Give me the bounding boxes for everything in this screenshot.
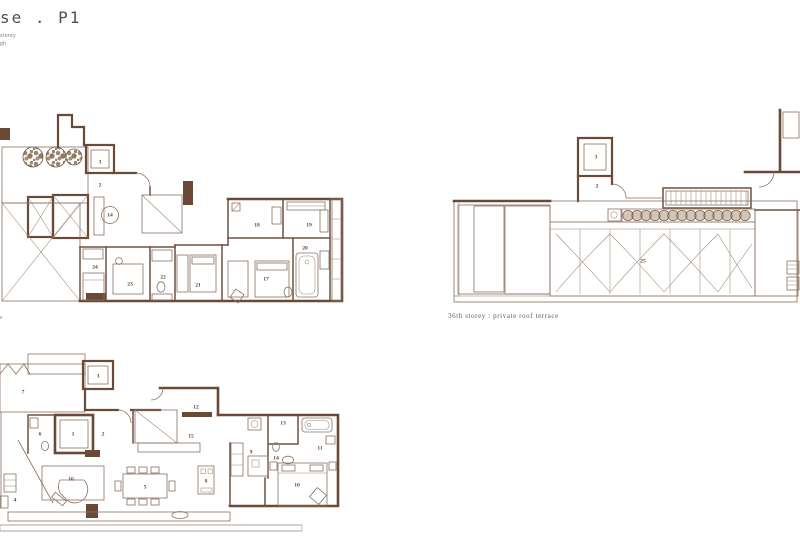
room-label-20: 20 <box>302 245 308 251</box>
room-label-17: 17 <box>263 276 269 282</box>
roof-terrace-plan: 3225 <box>450 106 800 311</box>
grand-piano <box>59 480 88 503</box>
upper-plan-caption-fragment: e <box>0 315 3 321</box>
dense-planting <box>505 206 550 294</box>
room-label-2: 2 <box>102 431 105 437</box>
room-label-12: 12 <box>193 404 199 410</box>
room-label-16: 16 <box>68 476 74 482</box>
room-label-7: 7 <box>22 389 25 395</box>
subtitle-line-2: gh <box>0 41 6 47</box>
corner-planting <box>783 112 799 138</box>
roof-plan-caption: 36th storey : private roof terrace <box>448 312 559 320</box>
door-swing <box>151 388 163 400</box>
brochure-page: { "page": { "title_fragment": "se . P1",… <box>0 0 800 551</box>
shrub-planting <box>46 147 66 167</box>
room-label-10: 10 <box>294 482 300 488</box>
room-label-19: 19 <box>306 222 312 228</box>
upper-walls <box>745 110 800 187</box>
room-label-1: 1 <box>72 431 75 437</box>
room-label-14: 14 <box>273 455 279 461</box>
room-17-bed <box>228 261 289 303</box>
room-label-3: 3 <box>595 154 598 160</box>
door-swing <box>118 410 131 423</box>
room-label-8: 8 <box>205 478 208 484</box>
room-label-24: 24 <box>92 264 98 270</box>
room-label-2: 2 <box>99 182 102 188</box>
subtitle-line-1: storey <box>0 33 16 39</box>
room-label-15: 15 <box>188 433 194 439</box>
lift-shaft-box <box>578 138 626 201</box>
bath-11-fixtures <box>302 418 335 444</box>
door-swing <box>759 172 774 187</box>
shrub-planting <box>66 149 82 165</box>
room-label-9: 9 <box>250 449 253 455</box>
terrace-decking <box>0 354 85 412</box>
entry-walls <box>85 389 160 457</box>
timber-deck <box>474 206 504 292</box>
side-deck <box>755 210 800 296</box>
room-label-5: 5 <box>144 484 147 490</box>
balcony-railing <box>0 512 302 532</box>
main-floor-plan: 73126121591314111016584 <box>0 348 345 551</box>
room-label-11: 11 <box>317 445 322 451</box>
room-label-21: 21 <box>195 282 201 288</box>
powder-room-fixtures <box>28 415 55 453</box>
store-area <box>0 412 53 508</box>
room-label-23: 23 <box>127 281 133 287</box>
structural-column <box>86 504 98 518</box>
room-label-3: 3 <box>97 373 100 379</box>
room-label-13: 13 <box>280 420 286 426</box>
room-20-bath <box>284 251 329 297</box>
room-label-6: 6 <box>39 431 42 437</box>
sawtooth-parapet <box>0 364 30 374</box>
room-24-fixtures <box>83 249 104 300</box>
lift-shafts <box>28 195 88 238</box>
staircase <box>142 195 182 233</box>
door-swing <box>136 173 150 187</box>
room-label-3: 3 <box>99 159 102 165</box>
room-label-22: 22 <box>160 274 166 280</box>
planter-block <box>454 201 550 294</box>
page-title-fragment: se . P1 <box>0 8 81 27</box>
shrub-planting <box>23 147 43 167</box>
gallery-railing <box>138 443 200 452</box>
room-label-4: 4 <box>14 497 17 503</box>
room-12-walls <box>151 388 218 417</box>
room-label-14: 14 <box>107 212 113 218</box>
room-23-fixtures <box>113 258 143 294</box>
room-label-18: 18 <box>254 222 260 228</box>
parapet-walls <box>0 115 84 147</box>
room-18-fixtures <box>232 203 281 224</box>
pool-water <box>556 234 752 292</box>
pool <box>550 222 755 296</box>
room-label-2: 2 <box>596 183 599 189</box>
pergola-trellis <box>626 188 751 208</box>
service-ledge <box>332 199 342 301</box>
hedge-planter-row <box>608 209 755 222</box>
kitchen-fixtures <box>231 443 268 476</box>
room-label-25: 25 <box>640 258 646 264</box>
entry-walls <box>112 173 193 205</box>
yard-fixtures <box>248 418 261 430</box>
bedroom-10-furniture <box>270 462 336 506</box>
upper-floor-plan: 32142423222117181920 <box>0 95 345 310</box>
door-swing <box>612 184 626 198</box>
